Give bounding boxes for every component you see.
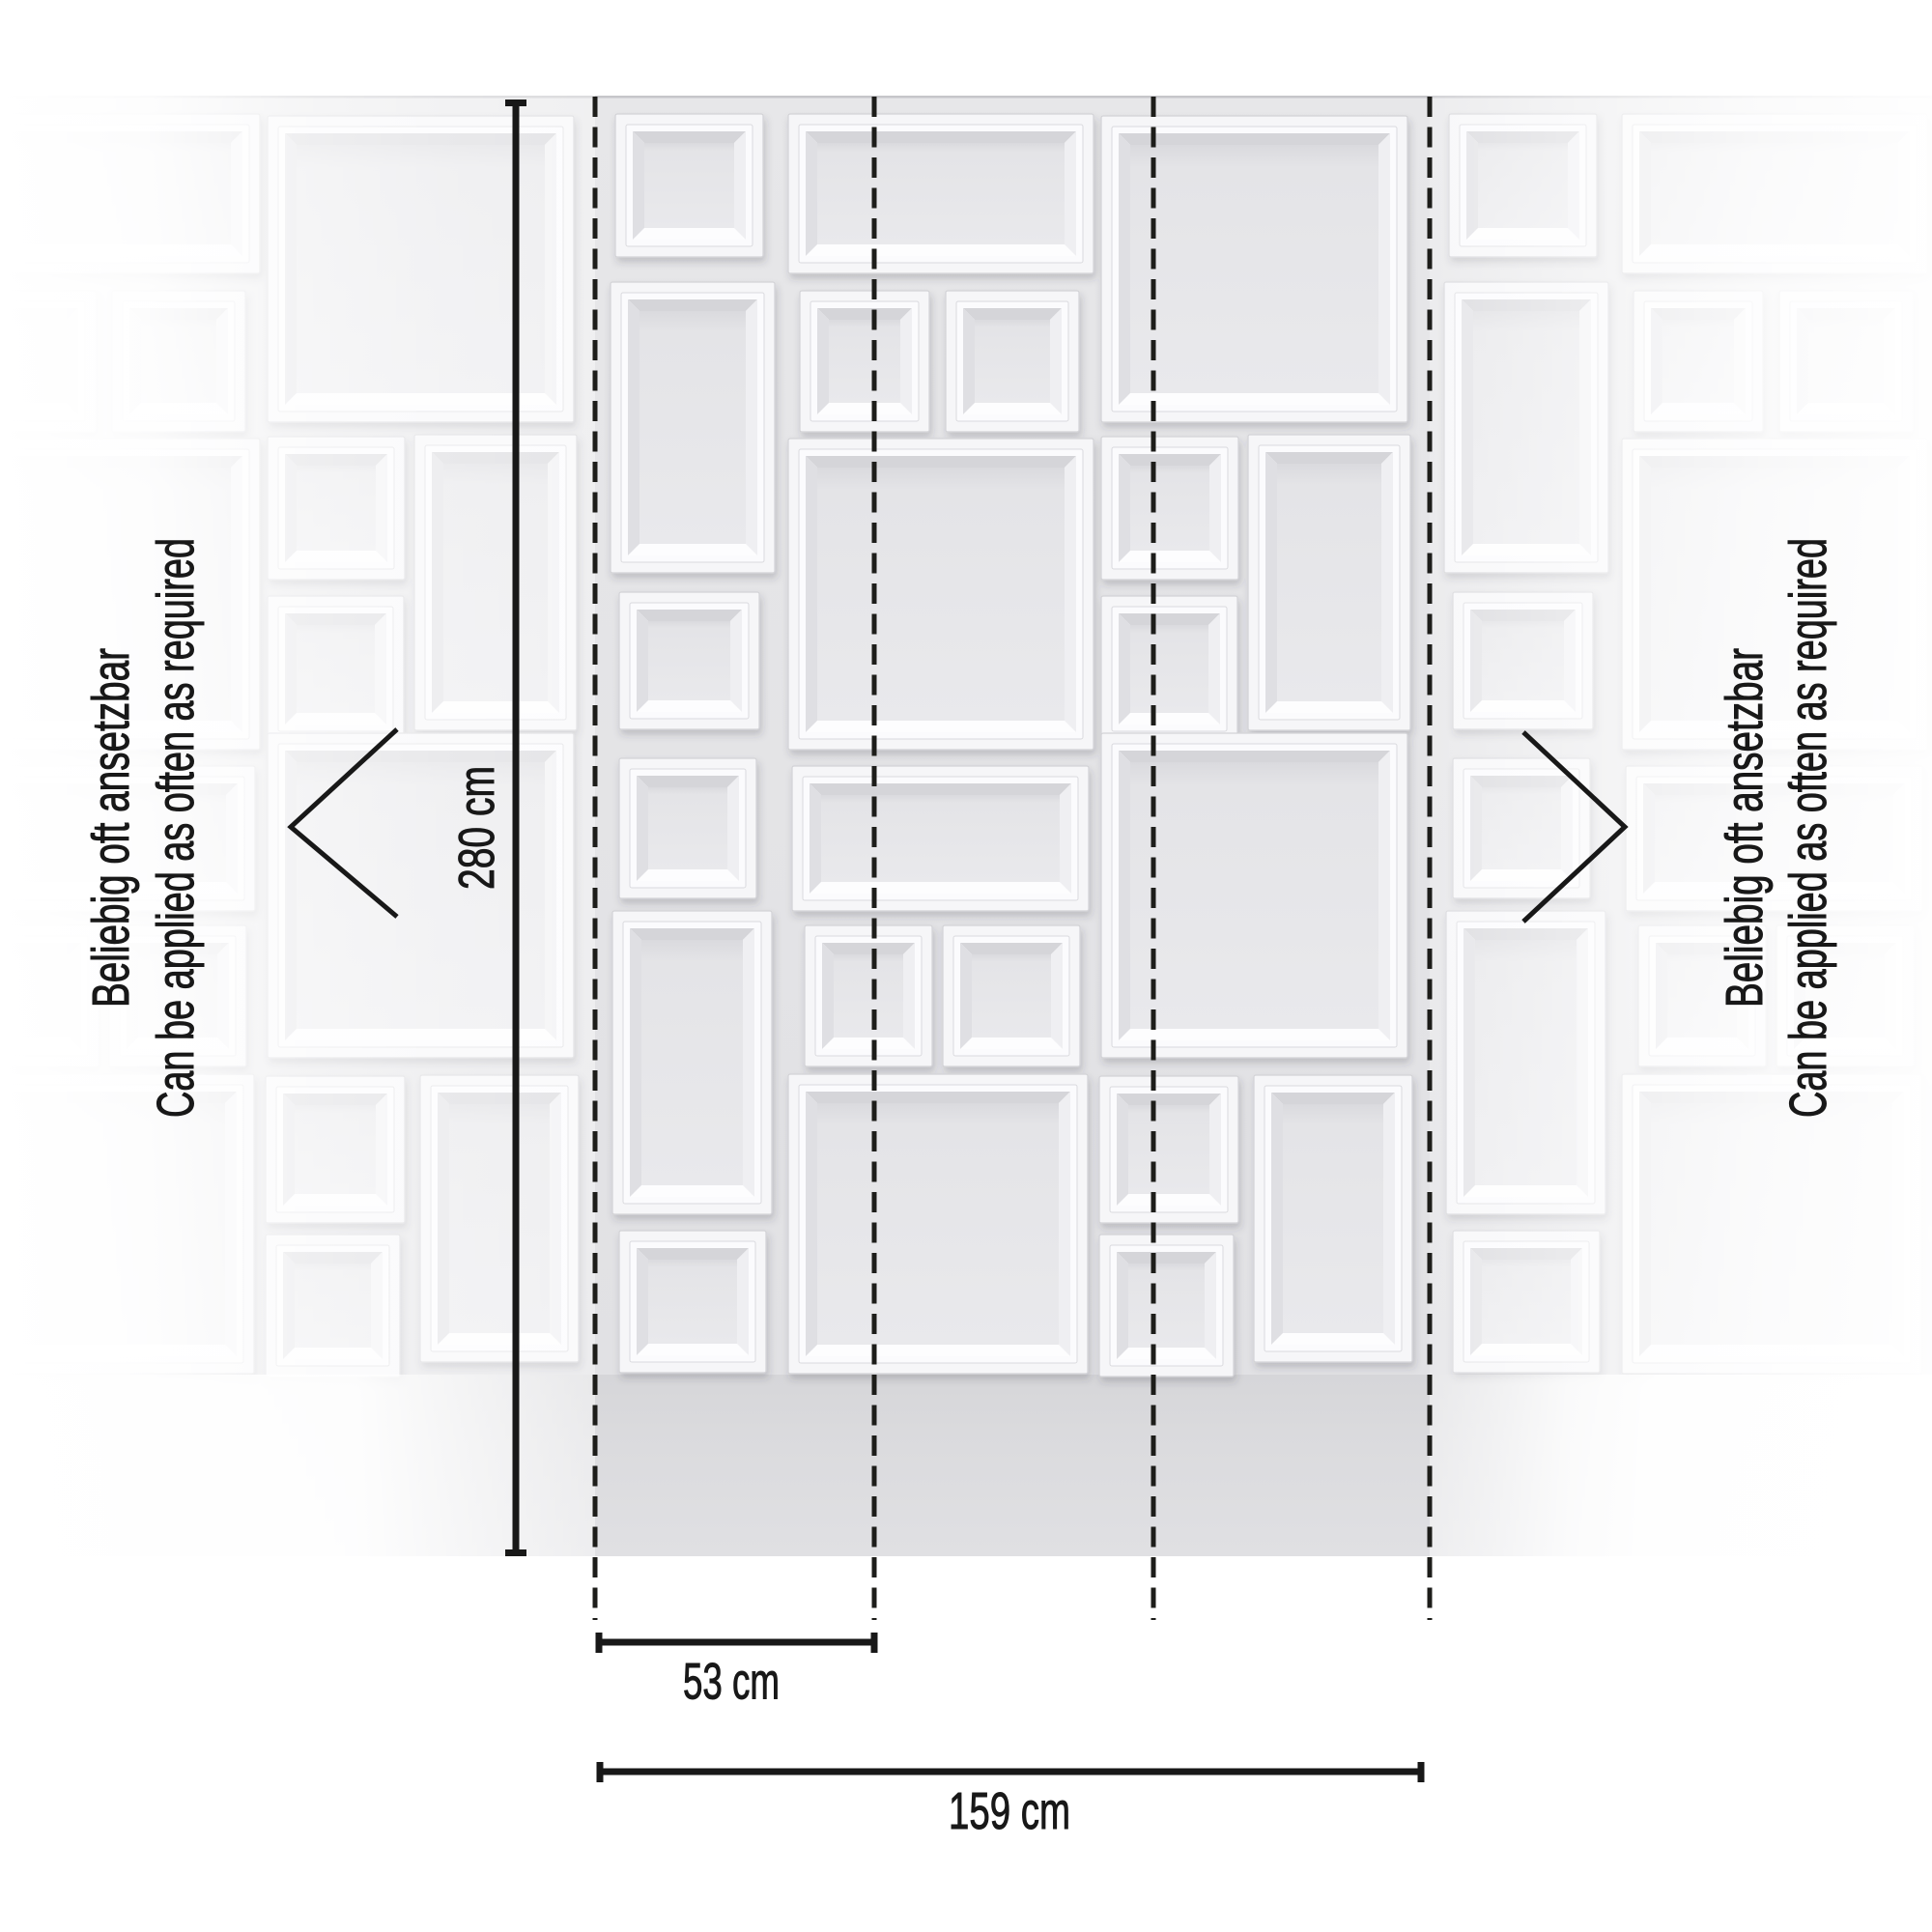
svg-text:Beliebig oft ansetzbar: Beliebig oft ansetzbar bbox=[1716, 648, 1774, 1008]
svg-text:Beliebig oft ansetzbar: Beliebig oft ansetzbar bbox=[82, 648, 140, 1008]
svg-text:159 cm: 159 cm bbox=[949, 1782, 1070, 1840]
svg-text:280 cm: 280 cm bbox=[449, 766, 505, 890]
svg-text:53 cm: 53 cm bbox=[683, 1654, 780, 1711]
svg-text:Can be applied as often as req: Can be applied as often as required bbox=[1779, 538, 1837, 1118]
svg-text:Can be applied as often as req: Can be applied as often as required bbox=[147, 538, 205, 1118]
